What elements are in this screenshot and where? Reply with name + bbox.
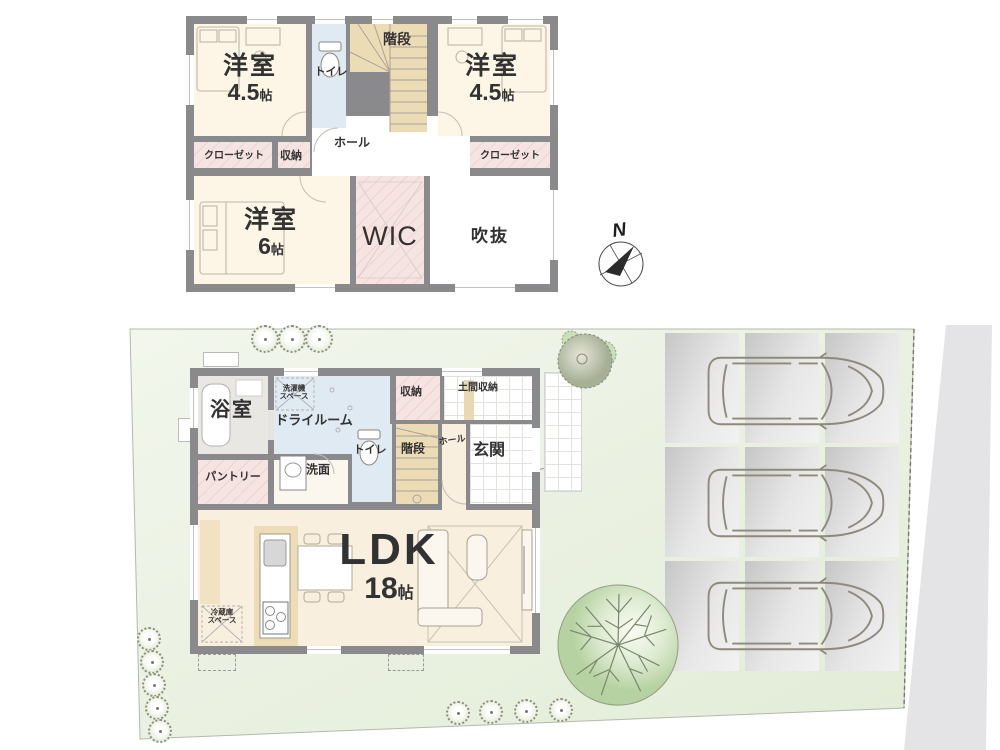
compass-icon: N (590, 218, 654, 290)
room-label-storage-1f: 収納 (400, 386, 422, 398)
car-icon (700, 577, 890, 655)
room-label-wic: WIC (362, 221, 417, 251)
vanity-icon (280, 456, 306, 490)
shrub-icon (479, 700, 503, 724)
car-icon (700, 352, 890, 430)
door-arc (282, 112, 462, 202)
room-label-entrance: 玄関 (473, 442, 505, 460)
tree-icon (556, 583, 684, 711)
shrub-icon (140, 650, 164, 674)
shrub-icon (446, 701, 470, 725)
room-label-washroom: 洗面 (306, 463, 330, 476)
room-label-closet-right: クローゼット (480, 150, 540, 161)
shrub-icon (514, 699, 538, 723)
room-label-fridge-space: 冷蔵庫スペース (207, 609, 236, 626)
room-label-bedroom-right: 洋室4.5帖 (465, 52, 519, 106)
outdoor-unit (388, 654, 424, 671)
room-label-stairs-1f: 階段 (401, 442, 425, 455)
shrub-icon (145, 696, 169, 720)
door-arc (314, 454, 466, 504)
shrub-icon (305, 325, 333, 353)
tree-icon (553, 328, 617, 392)
room-label-bath: 浴室 (210, 399, 254, 421)
room-label-storage-2f: 収納 (280, 150, 302, 162)
shrub-icon (148, 719, 172, 743)
room-label-void: 吹抜 (471, 226, 509, 245)
shrub-icon (137, 627, 161, 651)
shrub-icon (549, 698, 573, 722)
room-label-ldk: LDK18帖 (339, 528, 438, 606)
room-label-bedroom-large: 洋室6帖 (244, 206, 298, 260)
tv-board-icon (522, 530, 532, 610)
shrub-icon (142, 673, 166, 697)
outdoor-unit (198, 654, 236, 671)
room-label-stairs-2f: 階段 (383, 32, 411, 48)
room-label-dry-room: ドライルーム (275, 414, 353, 429)
car-icon (700, 464, 890, 542)
room-label-doma-storage: 土間収納 (458, 382, 498, 393)
shrub-icon (251, 325, 279, 353)
room-label-toilet-2f: トイレ (315, 66, 348, 78)
room-label-toilet-1f: トイレ (354, 444, 387, 456)
room-label-bedroom-left: 洋室4.5帖 (223, 52, 277, 106)
compass-north-label: N (611, 219, 629, 242)
room-label-hall-2f: ホール (334, 136, 370, 149)
floorplan-canvas: 洋室4.5帖 洋室4.5帖 洋室6帖 トイレ 階段 ホール クローゼット 収納 … (0, 0, 1000, 750)
room-label-closet-left: クローゼット (204, 150, 264, 161)
stairs-1f-lines (396, 428, 438, 503)
kitchen-icon (254, 526, 298, 646)
room-label-pantry: パントリー (205, 471, 261, 483)
shrub-icon (278, 325, 306, 353)
room-label-laundry-space: 洗濯機スペース (279, 385, 308, 402)
equipment-pad (203, 352, 239, 367)
